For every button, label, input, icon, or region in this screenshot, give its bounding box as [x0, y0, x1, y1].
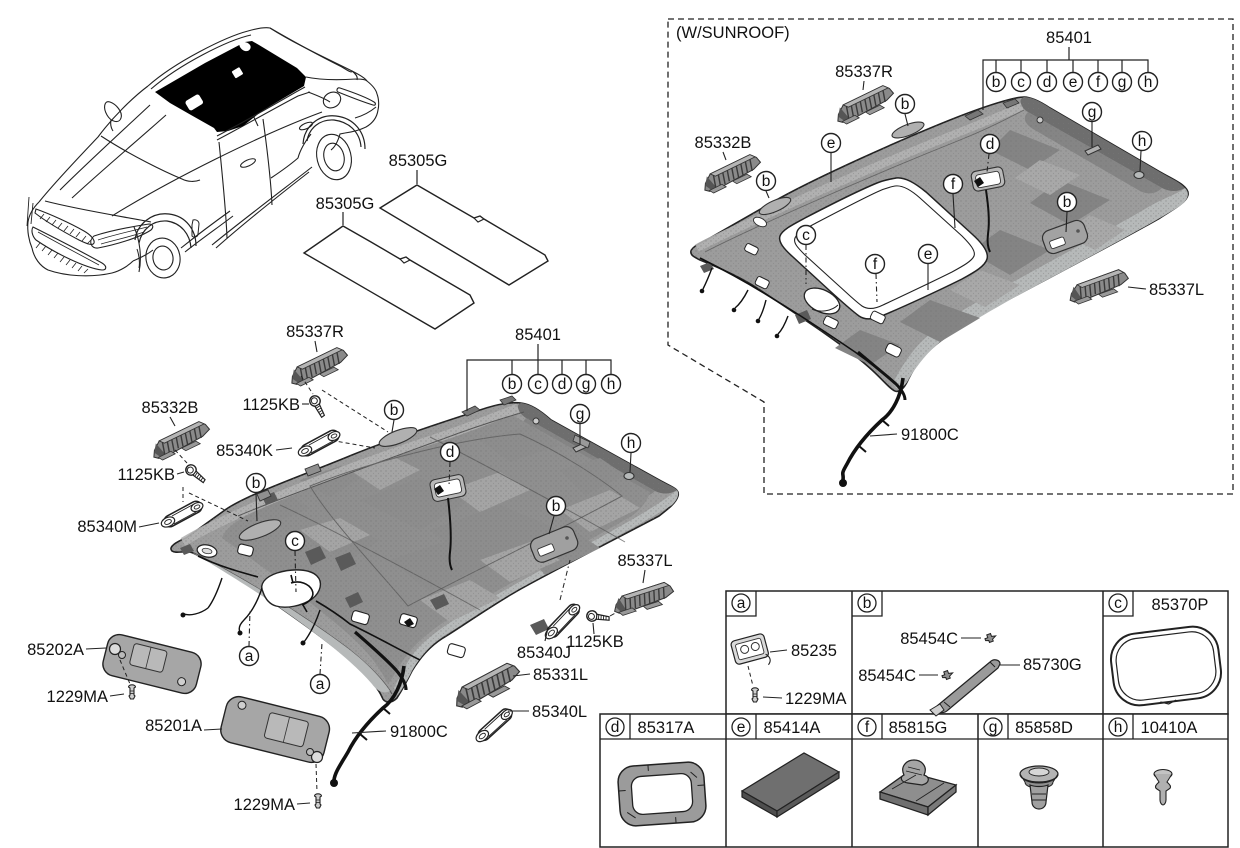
svg-text:f: f: [1096, 74, 1101, 91]
svg-text:h: h: [1144, 74, 1153, 91]
svg-text:b: b: [252, 475, 261, 492]
svg-text:85340K: 85340K: [216, 442, 273, 460]
svg-text:e: e: [924, 246, 933, 263]
svg-text:b: b: [762, 173, 771, 190]
svg-text:c: c: [1114, 595, 1122, 612]
svg-text:b: b: [901, 96, 910, 113]
svg-text:g: g: [1088, 104, 1097, 121]
svg-text:c: c: [1017, 74, 1025, 91]
svg-text:c: c: [534, 376, 542, 393]
svg-text:85730G: 85730G: [1023, 656, 1082, 674]
svg-text:85331L: 85331L: [533, 666, 588, 684]
svg-text:1125KB: 1125KB: [118, 466, 176, 484]
svg-text:85305G: 85305G: [389, 152, 448, 170]
svg-text:85401: 85401: [1046, 29, 1092, 47]
svg-text:(W/SUNROOF): (W/SUNROOF): [676, 24, 790, 42]
svg-text:e: e: [1069, 74, 1078, 91]
svg-text:b: b: [508, 376, 517, 393]
svg-text:g: g: [989, 719, 998, 736]
svg-text:91800C: 91800C: [390, 723, 448, 741]
svg-text:f: f: [951, 176, 956, 193]
svg-text:85332B: 85332B: [142, 399, 199, 417]
svg-text:1125KB: 1125KB: [566, 633, 624, 651]
svg-text:91800C: 91800C: [901, 426, 959, 444]
svg-text:d: d: [446, 444, 455, 461]
svg-text:85337L: 85337L: [617, 552, 672, 570]
svg-text:c: c: [802, 227, 810, 244]
svg-text:85337R: 85337R: [286, 323, 344, 341]
svg-text:1229MA: 1229MA: [234, 796, 295, 814]
svg-text:f: f: [865, 719, 870, 736]
svg-text:e: e: [737, 719, 746, 736]
svg-text:85815G: 85815G: [889, 719, 948, 737]
svg-text:85340L: 85340L: [532, 703, 587, 721]
svg-text:85414A: 85414A: [764, 719, 821, 737]
svg-text:85401: 85401: [515, 326, 561, 344]
svg-text:85370P: 85370P: [1152, 596, 1209, 614]
svg-text:d: d: [558, 376, 567, 393]
svg-text:85337L: 85337L: [1149, 281, 1204, 299]
svg-text:g: g: [582, 376, 591, 393]
svg-text:85858D: 85858D: [1015, 719, 1073, 737]
svg-text:f: f: [873, 256, 878, 273]
svg-text:a: a: [316, 676, 325, 693]
svg-text:b: b: [1063, 194, 1072, 211]
svg-text:b: b: [390, 402, 399, 419]
svg-text:h: h: [607, 376, 616, 393]
svg-text:d: d: [986, 136, 995, 153]
svg-text:b: b: [992, 74, 1001, 91]
svg-text:85305G: 85305G: [316, 195, 375, 213]
svg-text:1125KB: 1125KB: [243, 396, 301, 414]
svg-text:1229MA: 1229MA: [785, 690, 846, 708]
svg-text:h: h: [1138, 133, 1147, 150]
svg-text:b: b: [552, 498, 561, 515]
svg-text:85201A: 85201A: [145, 717, 202, 735]
svg-text:85235: 85235: [791, 642, 837, 660]
svg-text:85340J: 85340J: [517, 644, 571, 662]
svg-text:a: a: [737, 595, 746, 612]
svg-text:85454C: 85454C: [858, 667, 916, 685]
svg-text:85454C: 85454C: [900, 630, 958, 648]
svg-text:h: h: [1114, 719, 1123, 736]
svg-text:85340M: 85340M: [77, 518, 137, 536]
svg-text:c: c: [291, 533, 299, 550]
svg-text:b: b: [863, 595, 872, 612]
svg-text:85317A: 85317A: [638, 719, 695, 737]
svg-text:h: h: [627, 435, 636, 452]
svg-text:10410A: 10410A: [1141, 719, 1198, 737]
svg-text:a: a: [245, 648, 254, 665]
svg-text:85202A: 85202A: [27, 641, 84, 659]
svg-text:85337R: 85337R: [835, 63, 893, 81]
svg-text:1229MA: 1229MA: [47, 688, 108, 706]
svg-text:d: d: [611, 719, 620, 736]
svg-text:e: e: [827, 135, 836, 152]
svg-text:g: g: [576, 406, 585, 423]
svg-text:g: g: [1118, 74, 1127, 91]
svg-text:85332B: 85332B: [695, 134, 752, 152]
svg-text:d: d: [1043, 74, 1052, 91]
